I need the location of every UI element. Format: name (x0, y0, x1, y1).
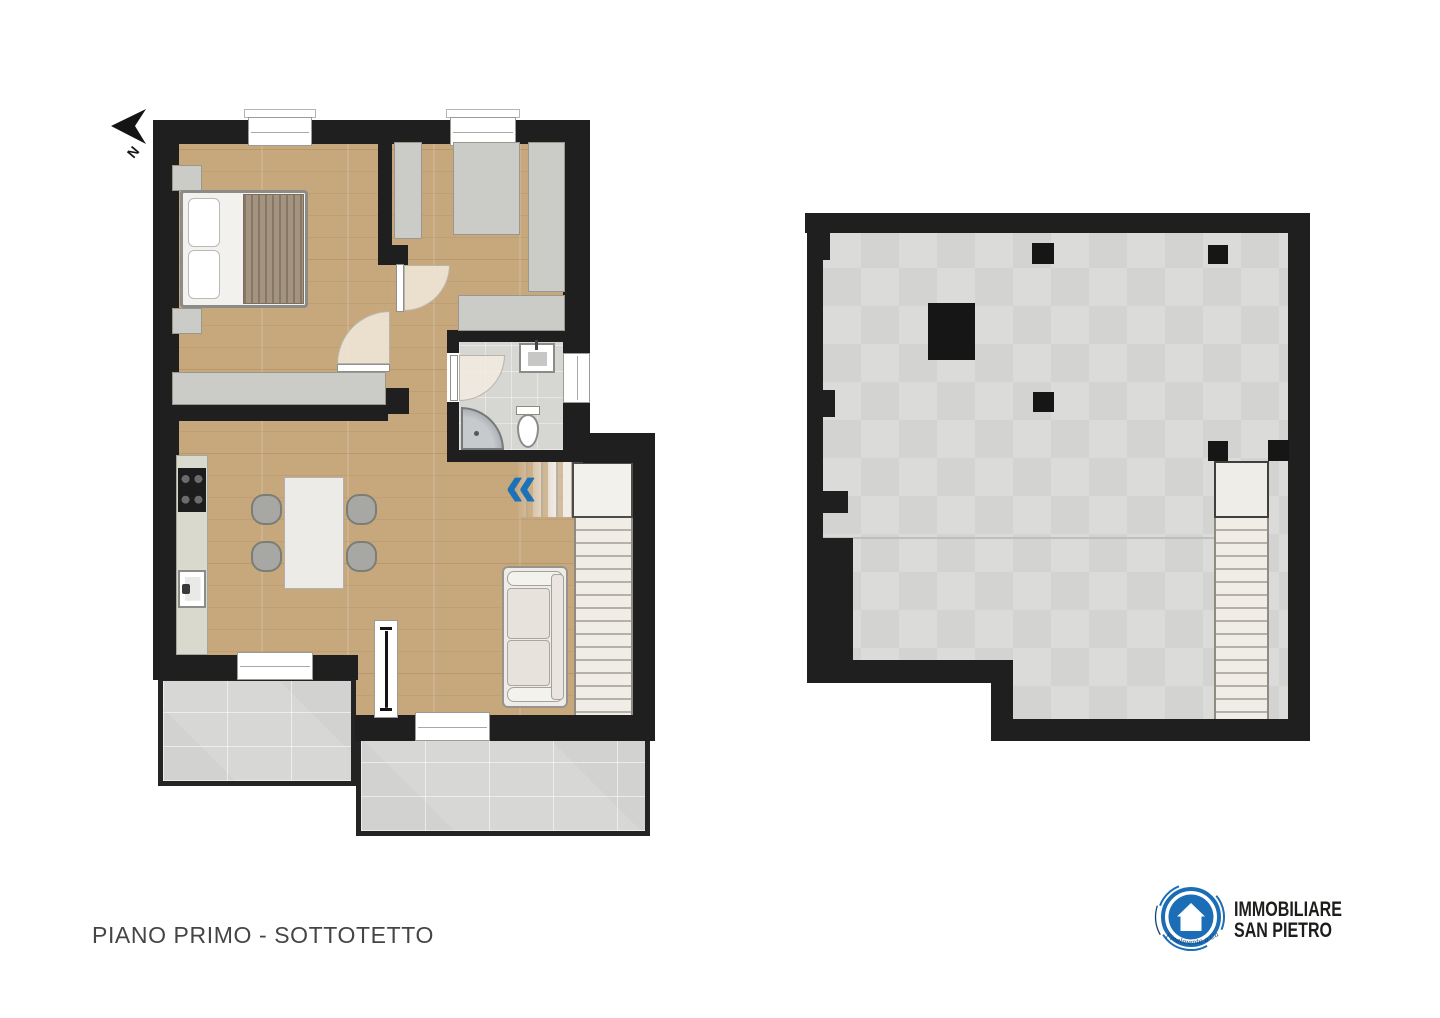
pillar (1032, 243, 1054, 264)
pillar (1268, 440, 1289, 461)
wall-segment (807, 390, 835, 417)
page-title: PIANO PRIMO - SOTTOTETTO (92, 922, 434, 949)
wall-segment (807, 213, 830, 260)
stairs-landing (1214, 461, 1269, 518)
wall-segment (807, 660, 1013, 683)
pillar (1208, 441, 1228, 461)
agency-logo: Finalmente a Casa IMMOBILIARE SAN PIETRO (1150, 872, 1362, 968)
wall-segment (807, 491, 848, 513)
pillar (1208, 245, 1228, 264)
roof-ridge-line (823, 537, 1214, 539)
floorplan-attic (0, 0, 1440, 1018)
wall-segment (991, 719, 1310, 741)
wall-segment (1288, 213, 1310, 741)
stairs-flight (1214, 518, 1269, 719)
pillar (928, 303, 975, 360)
pillar (1033, 392, 1054, 412)
wall-segment (805, 213, 1310, 233)
logo-graphic: Finalmente a Casa IMMOBILIARE SAN PIETRO (1150, 872, 1362, 968)
logo-name-line2: SAN PIETRO (1234, 918, 1332, 942)
floorplan-page: N (0, 0, 1440, 1018)
